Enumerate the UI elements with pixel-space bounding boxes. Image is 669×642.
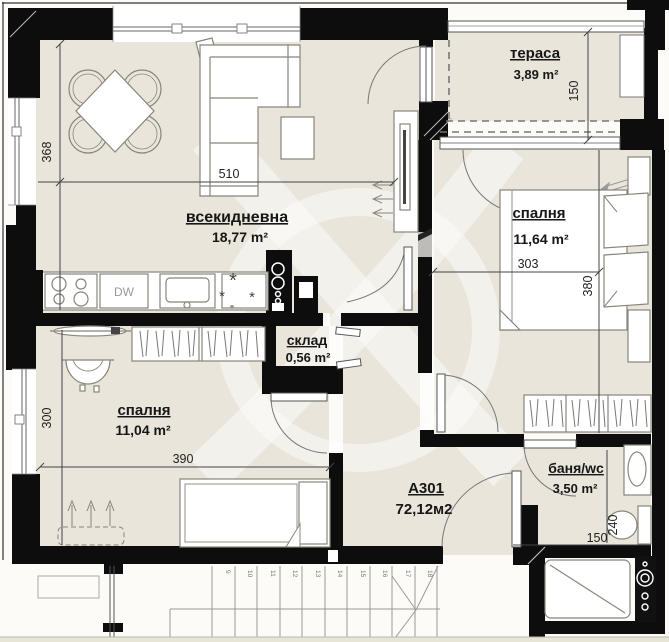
svg-text:всекидневна: всекидневна [186,209,288,226]
svg-text:12: 12 [291,570,298,578]
svg-text:A301: A301 [408,480,444,497]
svg-text:9: 9 [224,570,231,574]
svg-text:3,89 m²: 3,89 m² [514,67,559,82]
svg-text:14: 14 [336,570,343,578]
svg-text:11: 11 [269,570,276,577]
svg-text:спалня: спалня [512,205,565,222]
svg-text:303: 303 [518,257,539,271]
svg-text:*: * [219,288,225,305]
svg-text:510: 510 [219,167,240,181]
svg-text:баня/wc: баня/wc [548,460,604,476]
svg-text:240: 240 [606,515,620,536]
svg-text:72,12м2: 72,12м2 [396,501,453,518]
svg-text:тераса: тераса [510,45,561,62]
svg-text:17: 17 [404,570,411,578]
svg-text:13: 13 [314,570,321,578]
svg-text:380: 380 [581,276,595,297]
svg-text:300: 300 [40,408,54,429]
svg-text:150: 150 [567,81,581,102]
svg-text:18: 18 [426,570,433,578]
svg-text:368: 368 [40,142,54,163]
svg-text:15: 15 [359,570,366,578]
svg-text:0,56 m²: 0,56 m² [286,350,331,365]
svg-text:11,04 m²: 11,04 m² [115,422,171,438]
svg-text:DW: DW [114,285,135,299]
svg-text:*: * [229,270,237,292]
svg-text:16: 16 [381,570,388,578]
svg-text:390: 390 [173,452,194,466]
svg-text:10: 10 [246,570,253,578]
svg-text:3,50 m²: 3,50 m² [553,481,598,496]
svg-text:150: 150 [587,531,608,545]
svg-text:склад: склад [287,332,328,348]
svg-text:*: * [249,289,255,306]
svg-text:18,77 m²: 18,77 m² [212,229,268,245]
svg-text:11,64 m²: 11,64 m² [513,231,569,247]
svg-text:спалня: спалня [117,402,170,419]
